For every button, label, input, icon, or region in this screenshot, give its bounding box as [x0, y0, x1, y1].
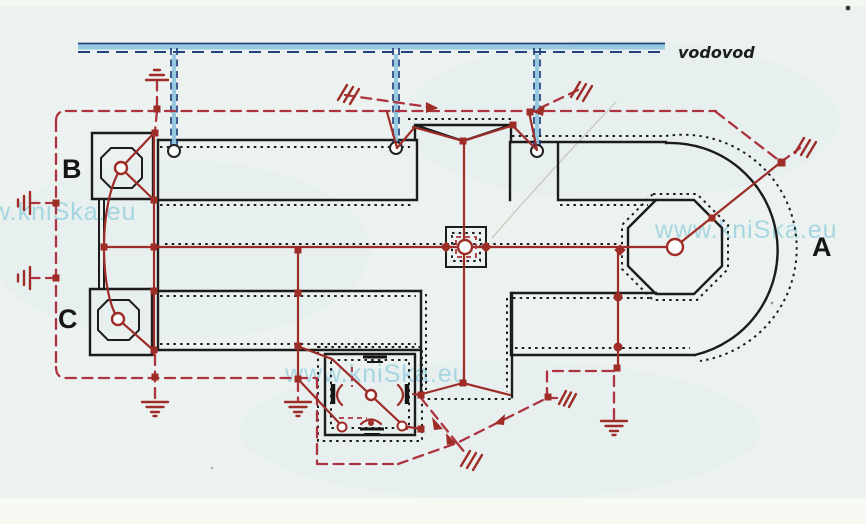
- paper-texture: [0, 0, 866, 524]
- scanned-diagram-page: w.kniSka.eu www.kniSka.eu www.kniSka.eu: [0, 0, 866, 524]
- watermark-left: w.kniSka.eu: [0, 198, 136, 226]
- annex-corner-circle-right: [398, 422, 407, 431]
- label-apse-a: A: [812, 232, 832, 262]
- rod-circle-tower-b: [115, 162, 127, 174]
- annex-corner-circle-left: [338, 423, 347, 432]
- rod-circle-crossing: [458, 240, 472, 254]
- rod-circle-tower-c: [112, 313, 124, 325]
- watermark-center: www.kniSka.eu: [284, 360, 468, 388]
- grounding-plan-diagram: w.kniSka.eu www.kniSka.eu www.kniSka.eu: [0, 0, 866, 524]
- label-tower-b: B: [62, 154, 82, 184]
- watermark-right: www.kniSka.eu: [654, 216, 838, 244]
- rod-circle-apse: [667, 239, 683, 255]
- label-tower-c: C: [58, 304, 78, 334]
- rod-circle-annex: [366, 390, 376, 400]
- label-water-main: vodovod: [678, 43, 755, 62]
- downpipe-shoe-left: [168, 145, 180, 157]
